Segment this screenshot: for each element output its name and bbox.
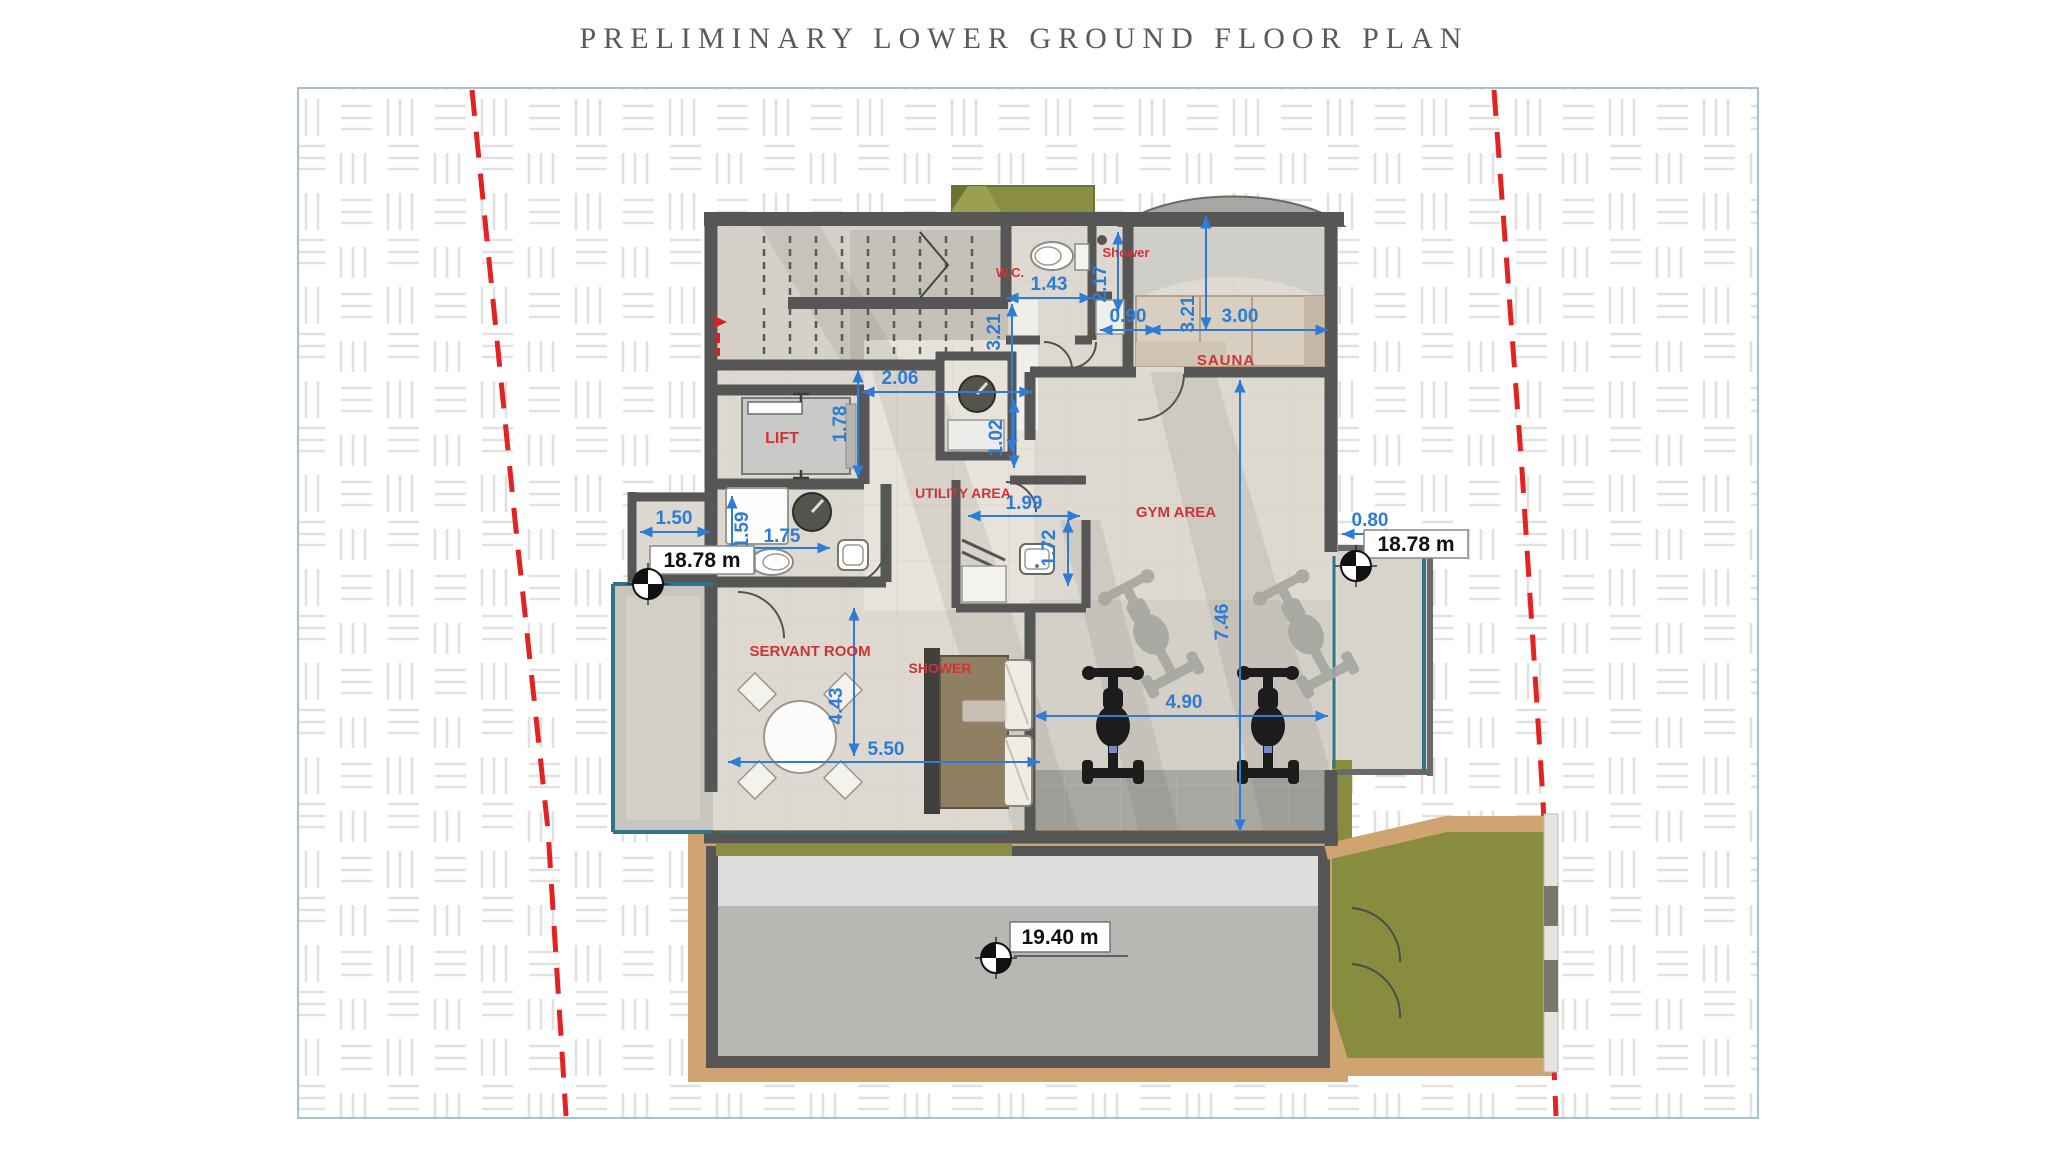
dim-321-sauna: 3.21 xyxy=(1178,295,1199,332)
dim-217: 2.17 xyxy=(1090,266,1111,303)
dim-321-wc: 3.21 xyxy=(984,313,1005,350)
dim-443: 4.43 xyxy=(826,688,847,725)
toilet-icon xyxy=(751,549,793,575)
dim-175: 1.75 xyxy=(764,526,801,547)
room-label-lift: LIFT xyxy=(765,430,799,447)
room-label-utility: UTILITY AREA xyxy=(915,485,1011,501)
shower-head-icon xyxy=(1097,235,1107,245)
dim-199: 1.99 xyxy=(1006,493,1043,514)
dim-150: 1.50 xyxy=(656,508,693,529)
dim-159: 1.59 xyxy=(732,512,753,549)
room-label-servant-shower: SHOWER xyxy=(909,660,972,676)
toilet-icon xyxy=(1031,242,1073,270)
floor-plan-sheet: PRELIMINARY LOWER GROUND FLOOR PLAN xyxy=(0,0,2048,1152)
dim-172: 1.72 xyxy=(1039,530,1060,567)
room-label-sauna: SAUNA xyxy=(1197,352,1255,369)
room-label-gym: GYM AREA xyxy=(1136,504,1216,521)
level-pool: 19.40 m xyxy=(1021,926,1098,949)
room-label-wc: W.C. xyxy=(996,265,1024,280)
level-right: 18.78 m xyxy=(1377,533,1454,556)
dim-090: 0.90 xyxy=(1110,306,1147,327)
dim-206: 2.06 xyxy=(882,368,919,389)
room-label-shower: Shower xyxy=(1103,245,1150,260)
room-label-servant: SERVANT ROOM xyxy=(749,643,870,660)
dim-746: 7.46 xyxy=(1212,604,1233,641)
dim-080: 0.80 xyxy=(1352,510,1389,531)
dim-490: 4.90 xyxy=(1166,692,1203,713)
dim-102: 1.02 xyxy=(986,420,1007,457)
dim-178: 1.78 xyxy=(830,406,851,443)
level-left: 18.78 m xyxy=(663,549,740,572)
dim-550: 5.50 xyxy=(868,739,905,760)
floor-plan-drawing: 2.06 1.78 1.43 3.21 2.17 0.90 3.21 3.00 … xyxy=(0,0,2048,1152)
dim-143: 1.43 xyxy=(1031,274,1068,295)
dim-300: 3.00 xyxy=(1222,306,1259,327)
page-title: PRELIMINARY LOWER GROUND FLOOR PLAN xyxy=(0,22,2048,56)
